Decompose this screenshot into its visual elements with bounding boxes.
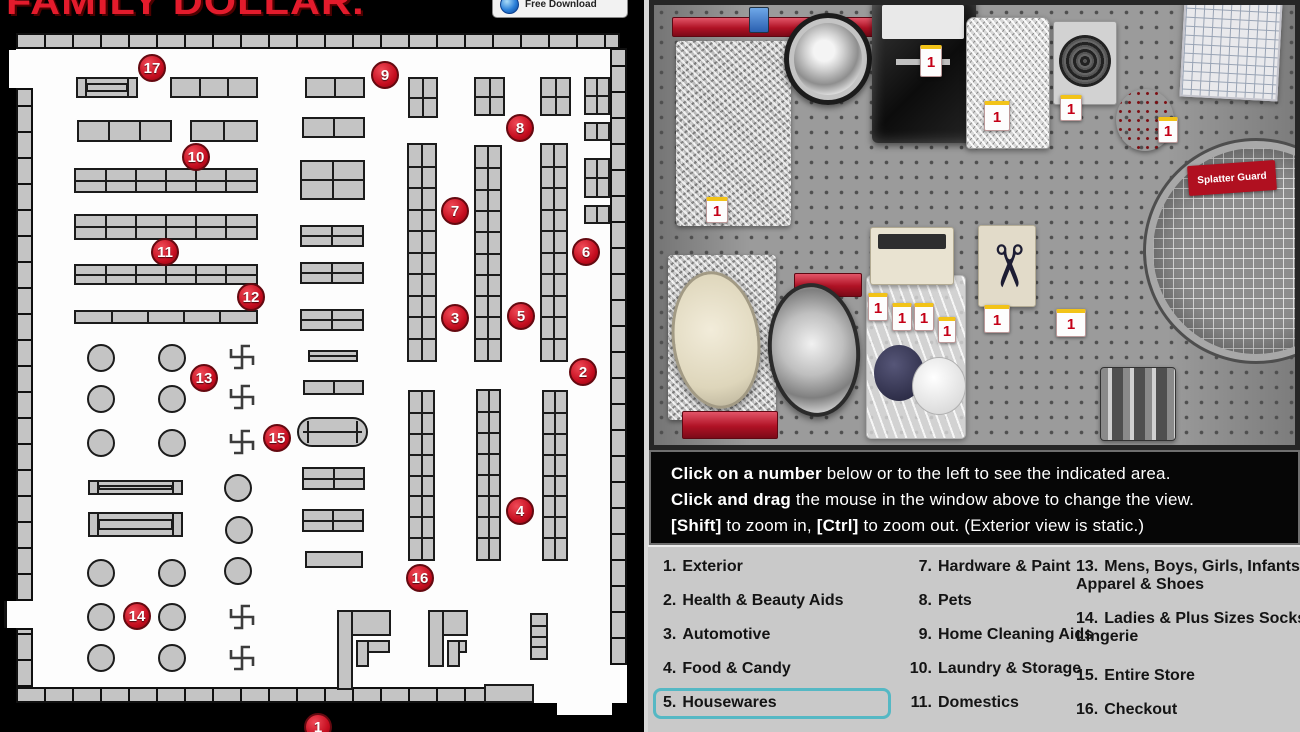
shelf-divider — [542, 338, 566, 340]
legend-item-label: Housewares — [682, 694, 776, 711]
shelf-divider — [542, 295, 566, 297]
shelf-divider — [476, 96, 503, 98]
shelf-divider — [532, 625, 546, 627]
legend-item-label: Checkout — [1104, 701, 1177, 718]
shelf-divider — [476, 189, 500, 191]
map-marker-14[interactable]: 14 — [123, 602, 151, 630]
map-marker-7[interactable]: 7 — [441, 197, 469, 225]
legend-item-number: 10. — [906, 660, 932, 678]
instruction-text: to zoom out. (Exterior view is static.) — [859, 516, 1145, 535]
area-photo-viewport[interactable]: 111111Splatter Guard1111✂11 — [649, 0, 1300, 450]
legend-item-label: Hardware & Paint — [938, 558, 1070, 575]
splatter-screen-pack — [1179, 0, 1282, 101]
map-marker-4[interactable]: 4 — [506, 497, 534, 525]
shelf-divider — [476, 210, 500, 212]
legend-item-2[interactable]: 2.Health & Beauty Aids — [663, 592, 878, 610]
rack-endcap — [127, 77, 138, 98]
shelf-divider — [586, 95, 608, 97]
shelf — [305, 77, 365, 98]
map-marker-2[interactable]: 2 — [569, 358, 597, 386]
legend-item-label: Laundry & Storage — [938, 660, 1081, 677]
legend-item-number: 5. — [663, 694, 676, 711]
instruction-text: Click on a number — [671, 464, 822, 483]
price-tag: 1 — [892, 303, 912, 331]
shelf — [190, 120, 258, 142]
shelf-divider — [333, 119, 335, 136]
round-rack — [87, 385, 115, 413]
shelf — [300, 309, 364, 331]
round-rack — [158, 644, 186, 672]
instruction-line: [Shift] to zoom in, [Ctrl] to zoom out. … — [671, 513, 1298, 539]
shelf-divider — [302, 272, 362, 274]
instruction-line: Click on a number below or to the left t… — [671, 461, 1298, 487]
shelf-divider — [410, 412, 433, 414]
shelf-divider — [410, 475, 433, 477]
price-tag-value: 1 — [1067, 101, 1075, 118]
legend-item-1[interactable]: 1.Exterior — [663, 558, 878, 576]
shelf-divider — [478, 453, 499, 455]
price-tag: 1 — [1060, 95, 1082, 121]
shelf-divider — [476, 295, 500, 297]
shelf — [300, 262, 364, 284]
shelf — [77, 120, 172, 142]
shelf-divider — [544, 495, 566, 497]
rack-bar — [86, 83, 128, 91]
shelf — [408, 77, 438, 118]
shelf-divider — [544, 475, 566, 477]
shelf-divider — [333, 382, 335, 393]
shelf-divider — [544, 412, 566, 414]
price-tag-value: 1 — [943, 323, 951, 340]
price-tag: 1 — [1056, 309, 1086, 337]
map-marker-16[interactable]: 16 — [406, 564, 434, 592]
price-tag-value: 1 — [920, 310, 928, 327]
shelf — [530, 613, 548, 660]
shelf — [88, 512, 183, 537]
shelf — [297, 417, 368, 447]
map-marker-1[interactable]: 1 — [304, 713, 332, 732]
shelf-divider — [409, 230, 435, 232]
map-marker-5[interactable]: 5 — [507, 302, 535, 330]
shelf-divider — [532, 646, 546, 648]
map-marker-12[interactable]: 12 — [237, 283, 265, 311]
shelf-divider — [304, 520, 362, 522]
shelf-divider — [409, 209, 435, 211]
shelf-divider — [596, 207, 598, 222]
legend-item-number: 15. — [1076, 667, 1098, 684]
shelf-divider — [409, 295, 435, 297]
shelf-divider — [476, 253, 500, 255]
rack-endcap — [172, 480, 183, 495]
map-marker-6[interactable]: 6 — [572, 238, 600, 266]
map-marker-9[interactable]: 9 — [371, 61, 399, 89]
wall — [610, 48, 627, 665]
shelf-divider — [476, 231, 500, 233]
shelf-divider — [542, 230, 566, 232]
legend-item-4[interactable]: 4.Food & Candy — [663, 660, 878, 678]
legend-item-14[interactable]: 14.Ladies & Plus Sizes Socks, Lingerie — [1076, 610, 1300, 646]
shelf-divider — [76, 274, 256, 276]
shelf — [356, 640, 369, 667]
map-marker-15[interactable]: 15 — [263, 424, 291, 452]
shelf-divider — [409, 273, 435, 275]
wall — [16, 687, 488, 703]
round-rack — [87, 344, 115, 372]
pinwheel-rack — [227, 382, 257, 412]
price-tag: 1 — [920, 45, 942, 77]
round-foil-pan — [784, 13, 872, 105]
legend-item-label: Ladies & Plus Sizes Socks, Lingerie — [1076, 610, 1300, 645]
shelf — [74, 168, 258, 193]
shelf-divider — [542, 316, 566, 318]
shelf — [408, 390, 435, 561]
shelf — [76, 77, 138, 98]
shelf-divider — [476, 274, 500, 276]
round-rack — [225, 516, 253, 544]
shelf-divider — [542, 187, 566, 189]
legend-item-number: 13. — [1076, 558, 1098, 575]
map-marker-13[interactable]: 13 — [190, 364, 218, 392]
legend-item-15[interactable]: 15.Entire Store — [1076, 667, 1300, 685]
pinwheel-rack — [227, 427, 257, 457]
round-rack — [224, 474, 252, 502]
shelf — [303, 380, 364, 395]
round-rack — [87, 603, 115, 631]
shelf — [74, 214, 258, 240]
shelf — [302, 467, 365, 490]
price-tag: 1 — [868, 293, 888, 321]
shelf-divider — [303, 431, 362, 433]
instruction-text: [Shift] — [671, 516, 722, 535]
shelf-divider — [410, 495, 433, 497]
instruction-line: Click and drag the mouse in the window a… — [671, 487, 1298, 513]
legend-item-number: 3. — [663, 626, 676, 643]
legend-item-8[interactable]: 8.Pets — [906, 592, 1121, 610]
instruction-text: Click and drag — [671, 490, 791, 509]
wall — [16, 628, 33, 687]
price-tag-value: 1 — [927, 54, 935, 71]
legend-item-label: Automotive — [682, 626, 770, 643]
shelf-divider — [478, 411, 499, 413]
instruction-text: below or to the left to see the indicate… — [822, 464, 1171, 483]
shelf-divider — [409, 252, 435, 254]
scrub-pads-box — [870, 227, 954, 285]
shelf-divider — [478, 516, 499, 518]
shelf-divider — [476, 316, 500, 318]
shelf-divider — [223, 122, 225, 140]
shelf-divider — [183, 312, 185, 322]
price-tag-value: 1 — [993, 312, 1001, 329]
metal-scourer-pack — [1053, 21, 1117, 105]
shelf-divider — [542, 166, 566, 168]
legend-item-number: 16. — [1076, 701, 1098, 718]
shelf-divider — [544, 516, 566, 518]
shelf — [170, 77, 258, 98]
legend-item-3[interactable]: 3.Automotive — [663, 626, 878, 644]
shelf — [584, 122, 610, 141]
legend-item-number: 9. — [906, 626, 932, 644]
shelf — [584, 158, 610, 198]
instruction-text: to zoom in, — [722, 516, 817, 535]
scissors-card: ✂ — [978, 225, 1036, 307]
shelf — [88, 480, 183, 495]
shelf-divider — [410, 433, 433, 435]
shelf-divider — [542, 209, 566, 211]
legend-item-number: 2. — [663, 592, 676, 609]
shelf — [542, 390, 568, 561]
red-items — [682, 411, 778, 439]
rack-endcap — [172, 512, 183, 537]
shelf-divider — [542, 252, 566, 254]
door-notch — [4, 601, 21, 628]
map-marker-8[interactable]: 8 — [506, 114, 534, 142]
shelf — [407, 143, 437, 362]
shelf-divider — [532, 636, 546, 638]
shelf-divider — [108, 122, 110, 140]
shelf-divider — [227, 79, 229, 96]
round-rack — [87, 429, 115, 457]
price-tag: 1 — [914, 303, 934, 331]
shelf-divider — [139, 122, 141, 140]
round-rack — [158, 385, 186, 413]
shelf-divider — [478, 474, 499, 476]
shelf-divider — [199, 79, 201, 96]
legend-item-number: 4. — [663, 660, 676, 677]
shelf — [300, 225, 364, 247]
store-map-viewer: FAMILY DOLLAR. Free Download 12345678910… — [0, 0, 1300, 732]
shelf — [484, 684, 534, 703]
shelf — [474, 145, 502, 362]
shelf — [74, 310, 258, 324]
shelf-divider — [410, 516, 433, 518]
shelf-divider — [409, 338, 435, 340]
shelf-divider — [410, 97, 436, 99]
shelf-divider — [76, 180, 256, 182]
legend-item-number: 1. — [663, 558, 676, 575]
shelf-divider — [111, 312, 113, 322]
shelf — [540, 77, 571, 116]
pinwheel-rack — [227, 342, 257, 372]
shelf-divider — [76, 226, 256, 228]
door-notch — [557, 700, 612, 715]
shelf-divider — [544, 537, 566, 539]
legend-item-number: 14. — [1076, 610, 1098, 627]
rack-bar — [98, 519, 173, 529]
shelf-divider — [544, 454, 566, 456]
rack-bar — [98, 485, 173, 490]
shelf — [337, 610, 353, 690]
hanging-tag-blue — [749, 7, 769, 33]
shelf-divider — [596, 124, 598, 139]
shelf-divider — [304, 478, 363, 480]
shelf-divider — [409, 187, 435, 189]
instruction-text: [Ctrl] — [817, 516, 859, 535]
legend-item-number: 7. — [906, 558, 932, 576]
shelf — [305, 551, 363, 568]
shelf-divider — [586, 177, 608, 179]
shelf — [474, 77, 505, 116]
price-tag: 1 — [984, 305, 1010, 333]
legend-item-label: Entire Store — [1104, 667, 1195, 684]
shelf-divider — [476, 338, 500, 340]
price-tag: 1 — [706, 197, 728, 223]
foil-pans-stack — [676, 41, 791, 226]
wall — [16, 88, 33, 601]
legend-item-label: Exterior — [682, 558, 742, 575]
shelf — [308, 350, 358, 362]
price-tag-value: 1 — [898, 310, 906, 327]
shelf-divider — [334, 79, 336, 96]
round-rack — [158, 344, 186, 372]
shelf — [447, 640, 460, 667]
shelf-divider — [302, 179, 363, 181]
shelf — [540, 143, 568, 362]
legend-item-5[interactable]: 5.Housewares — [653, 688, 891, 719]
round-rack — [87, 644, 115, 672]
door-notch — [9, 50, 33, 88]
shelf-divider — [476, 167, 500, 169]
shelf — [584, 205, 610, 224]
price-tag: 1 — [938, 317, 956, 343]
map-marker-10[interactable]: 10 — [182, 143, 210, 171]
legend-item-label: Health & Beauty Aids — [682, 592, 843, 609]
legend-item-13[interactable]: 13.Mens, Boys, Girls, Infants Apparel & … — [1076, 558, 1300, 594]
store-floorplan[interactable]: 1234567891011121314151617 — [0, 0, 648, 732]
pinwheel-rack — [227, 643, 257, 673]
instructions-box: Click on a number below or to the left t… — [649, 450, 1300, 545]
price-tag-value: 1 — [993, 109, 1001, 126]
round-rack — [87, 559, 115, 587]
price-tag-value: 1 — [874, 300, 882, 317]
splatter-guard-label: Splatter Guard — [1187, 160, 1277, 196]
shelf — [584, 77, 610, 115]
price-tag-value: 1 — [713, 203, 721, 220]
wall — [16, 33, 620, 49]
shelf-divider — [409, 316, 435, 318]
shelf-divider — [478, 495, 499, 497]
price-tag: 1 — [984, 101, 1010, 131]
round-rack — [224, 557, 252, 585]
price-tag: 1 — [1158, 117, 1178, 143]
foil-rolls — [1100, 367, 1176, 441]
shelf — [74, 264, 258, 285]
shelf — [302, 117, 365, 138]
shelf-divider — [409, 166, 435, 168]
legend-item-number: 8. — [906, 592, 932, 610]
legend-item-label: Domestics — [938, 694, 1019, 711]
instruction-text: the mouse in the window above to change … — [791, 490, 1194, 509]
map-marker-17[interactable]: 17 — [138, 54, 166, 82]
shelf-divider — [310, 355, 356, 357]
shelf-divider — [542, 273, 566, 275]
legend-item-label: Pets — [938, 592, 972, 609]
shelf-divider — [410, 454, 433, 456]
pinwheel-rack — [227, 602, 257, 632]
shelf-divider — [478, 537, 499, 539]
round-rack — [158, 429, 186, 457]
shelf — [300, 160, 365, 200]
legend-item-16[interactable]: 16.Checkout — [1076, 701, 1300, 719]
round-rack — [158, 603, 186, 631]
map-marker-3[interactable]: 3 — [441, 304, 469, 332]
shelf — [428, 610, 444, 667]
shelf-divider — [219, 312, 221, 322]
shelf-divider — [410, 537, 433, 539]
legend-item-label: Food & Candy — [682, 660, 790, 677]
legend-item-label: Mens, Boys, Girls, Infants Apparel & Sho… — [1076, 558, 1300, 593]
round-rack — [158, 559, 186, 587]
legend-item-label: Home Cleaning Aids — [938, 626, 1093, 643]
shelf-divider — [302, 319, 362, 321]
shelf-divider — [544, 433, 566, 435]
map-marker-11[interactable]: 11 — [151, 238, 179, 266]
legend: 1.Exterior2.Health & Beauty Aids3.Automo… — [648, 545, 1300, 732]
shelf-divider — [478, 432, 499, 434]
price-tag-value: 1 — [1164, 123, 1172, 140]
shelf — [476, 389, 501, 561]
shelf-divider — [542, 96, 569, 98]
scissors-icon: ✂ — [978, 242, 1036, 291]
price-tag-value: 1 — [1067, 316, 1075, 333]
shelf — [302, 509, 364, 532]
shelf-divider — [302, 235, 362, 237]
map-panel: FAMILY DOLLAR. Free Download 12345678910… — [0, 0, 648, 732]
white-bowl-cover — [912, 357, 966, 415]
legend-item-number: 11. — [906, 694, 932, 712]
shelf-divider — [147, 312, 149, 322]
